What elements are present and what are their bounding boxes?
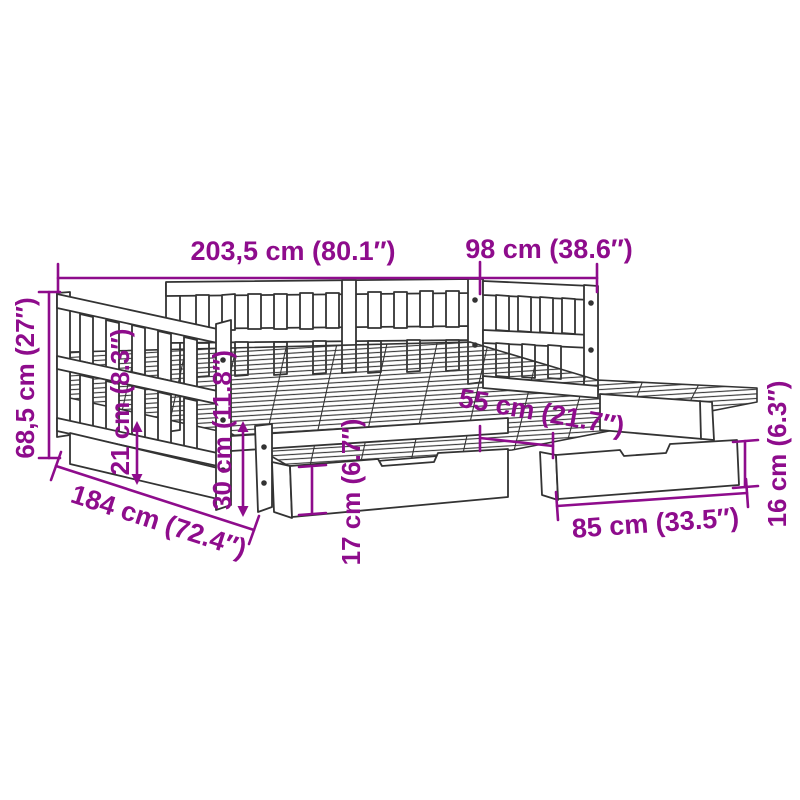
- daybed-line-drawing: [57, 279, 757, 518]
- diagram-canvas: 203,5 cm (80.1″) 98 cm (38.6″) 68,5 cm (…: [0, 0, 800, 800]
- label-trundle-height: 17 cm (6.7″): [336, 419, 366, 566]
- back-upper-slats: [196, 291, 459, 330]
- label-under-bed-height: 30 cm (11.8″): [207, 350, 237, 510]
- label-leg-clearance: 21 cm (8.3″): [105, 329, 135, 476]
- label-total-width: 98 cm (38.6″): [465, 234, 633, 264]
- label-drawer-width: 85 cm (33.5″): [571, 502, 740, 544]
- daybed-dimension-diagram: 203,5 cm (80.1″) 98 cm (38.6″) 68,5 cm (…: [0, 0, 800, 800]
- label-drawer-height: 16 cm (6.3″): [762, 381, 792, 528]
- left-drawer-side: [272, 462, 292, 518]
- label-total-length: 203,5 cm (80.1″): [190, 236, 395, 266]
- trundle-leg: [255, 424, 272, 512]
- label-total-height: 68,5 cm (27″): [10, 297, 40, 458]
- bed-right-leg-line: [700, 401, 701, 439]
- right-drawer-front: [556, 440, 739, 499]
- right-upper-slats: [496, 295, 575, 334]
